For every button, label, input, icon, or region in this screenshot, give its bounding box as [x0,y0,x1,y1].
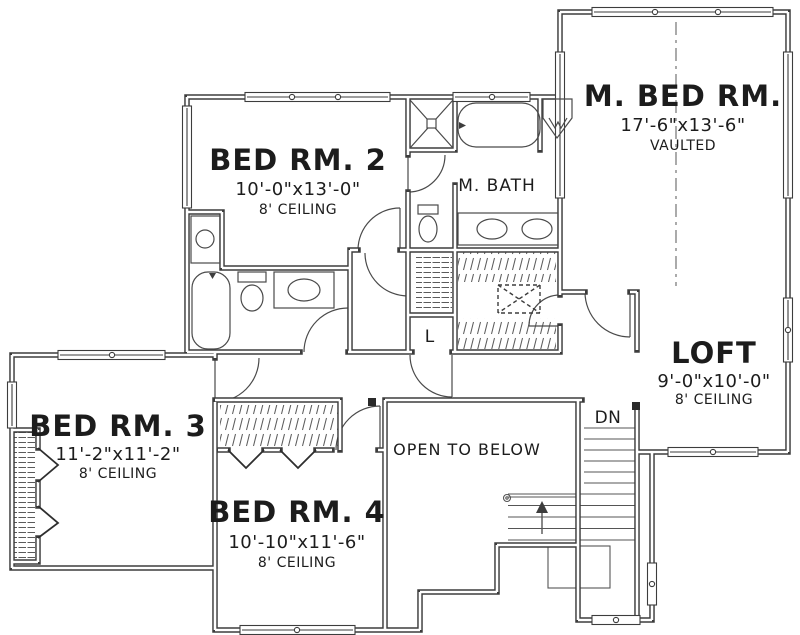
bed4-ceiling: 8' CEILING [258,555,336,571]
walkin-closet-hatch-bottom [458,318,556,349]
newel-post-hall [368,398,376,406]
linen-closet-label: L [425,327,435,347]
master-bath-window [453,93,530,102]
loft-bottom-window [668,448,758,457]
bed2-name: BED RM. 2 [209,143,387,177]
linen-closet-hatch [416,253,452,312]
bed4-label: BED RM. 4 10'-10"x11'-6" 8' CEILING [208,495,386,571]
master-toilet [418,205,438,242]
railing-spiral-center [506,497,508,499]
hall-tub [192,272,230,349]
hall-vanity [274,272,334,308]
master-tub [458,103,540,147]
loft-dims: 9'-0"x10'-0" [657,371,770,392]
master-vanity [458,213,558,245]
bed4-name: BED RM. 4 [208,495,386,529]
nook-sink [196,230,214,248]
loft-ceiling: 8' CEILING [675,392,753,408]
fixtures [191,99,572,349]
bed3-top-window [58,351,165,360]
bed2-top-window [245,93,390,102]
stair-treads-lower [508,494,637,540]
bed3-label: BED RM. 3 11'-2"x11'-2" 8' CEILING [29,409,207,482]
master-bedroom-door [585,292,630,337]
stair-direction-arrow-head [536,501,548,513]
bed4-bottom-window [240,626,355,635]
stair-right-window [648,563,657,605]
hall-vanity-sink [288,279,320,301]
hall-toilet [238,272,266,311]
loft-right-window [784,298,793,362]
railing-spiral-end [504,495,511,502]
bed2-dims: 10'-0"x13'-0" [235,179,360,200]
bed4-closet-bifold-left [228,450,264,468]
loft-name: LOFT [671,336,757,370]
stairs-down-label: DN [595,408,622,428]
shower-room-door [408,155,445,192]
bed2-label: BED RM. 2 10'-0"x13'-0" 8' CEILING [209,143,387,218]
master-bath-name: M. BATH [458,176,536,196]
bed2-left-window [183,106,192,208]
bed3-door [215,358,259,402]
bed4-dims: 10'-10"x11'-6" [228,532,365,553]
hall-bath-vanity-nook [191,216,220,263]
bed3-ceiling: 8' CEILING [79,466,157,482]
stair-treads-upper [584,428,637,483]
bed3-closet-bifold-bottom [38,506,58,538]
hall-bath-door [304,308,348,352]
bed3-left-window [8,382,17,428]
bed4-closet-bifold-right [280,450,316,468]
bed2-ceiling: 8' CEILING [259,202,337,218]
master-bed-ceiling: VAULTED [650,138,716,154]
linen-closet-door [410,355,452,397]
floor-plan: BED RM. 2 10'-0"x13'-0" 8' CEILING M. BA… [0,0,800,635]
stair-bottom-window [592,616,640,625]
open-to-below-label: OPEN TO BELOW [393,440,541,459]
shower [410,100,453,148]
bed3-closet-hatch [14,432,36,560]
attic-access-box [498,285,540,313]
master-bed-name: M. BED RM. [584,79,782,113]
bed4-closet-hatch [220,405,338,448]
vanity-sink-left [477,219,507,239]
master-bed-dims: 17'-6"x13'-6" [620,115,745,136]
bed3-dims: 11'-2"x11'-2" [55,444,180,465]
master-bed-label: M. BED RM. 17'-6"x13'-6" VAULTED [584,79,782,154]
loft-label: LOFT 9'-0"x10'-0" 8' CEILING [657,336,770,408]
master-bed-top-window [592,8,773,17]
vanity-sink-right [522,219,552,239]
newel-post-stair [632,402,640,410]
master-bed-right-window [784,52,793,198]
master-bath-door [365,253,408,296]
bed2-door [358,208,400,250]
walkin-closet-hatch-top [458,252,556,282]
floor-plan-svg: BED RM. 2 10'-0"x13'-0" 8' CEILING M. BA… [0,0,800,635]
bed3-name: BED RM. 3 [29,409,207,443]
tub-faucet [459,122,466,129]
